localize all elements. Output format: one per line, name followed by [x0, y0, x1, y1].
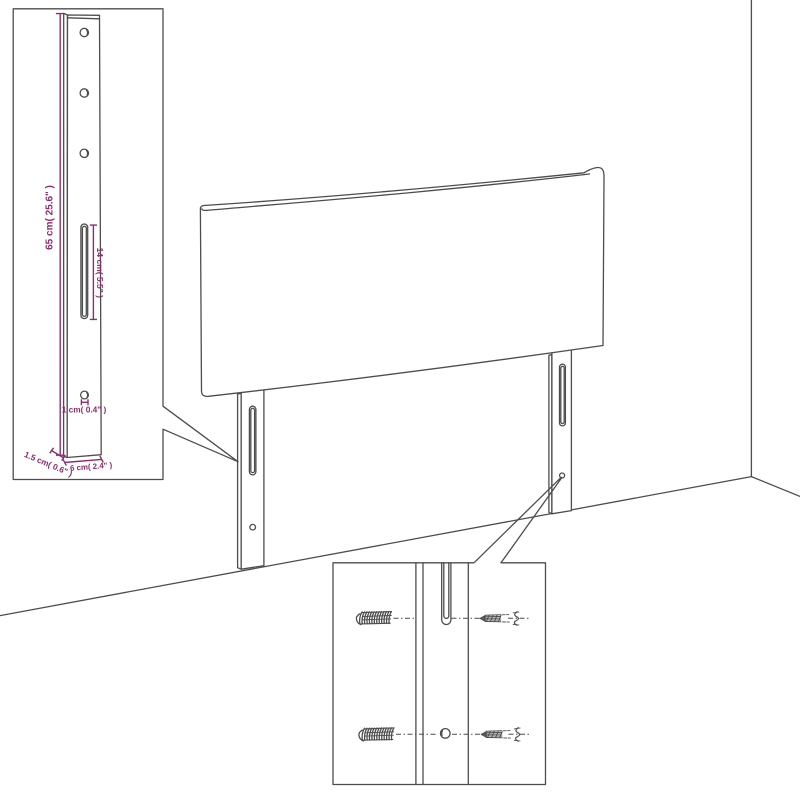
svg-text:65 cm( 25.6" ): 65 cm( 25.6" ): [45, 185, 56, 250]
svg-text:14 cm( 5.5" ): 14 cm( 5.5" ): [95, 248, 105, 299]
svg-text:1 cm( 0.4" ): 1 cm( 0.4" ): [62, 404, 107, 414]
